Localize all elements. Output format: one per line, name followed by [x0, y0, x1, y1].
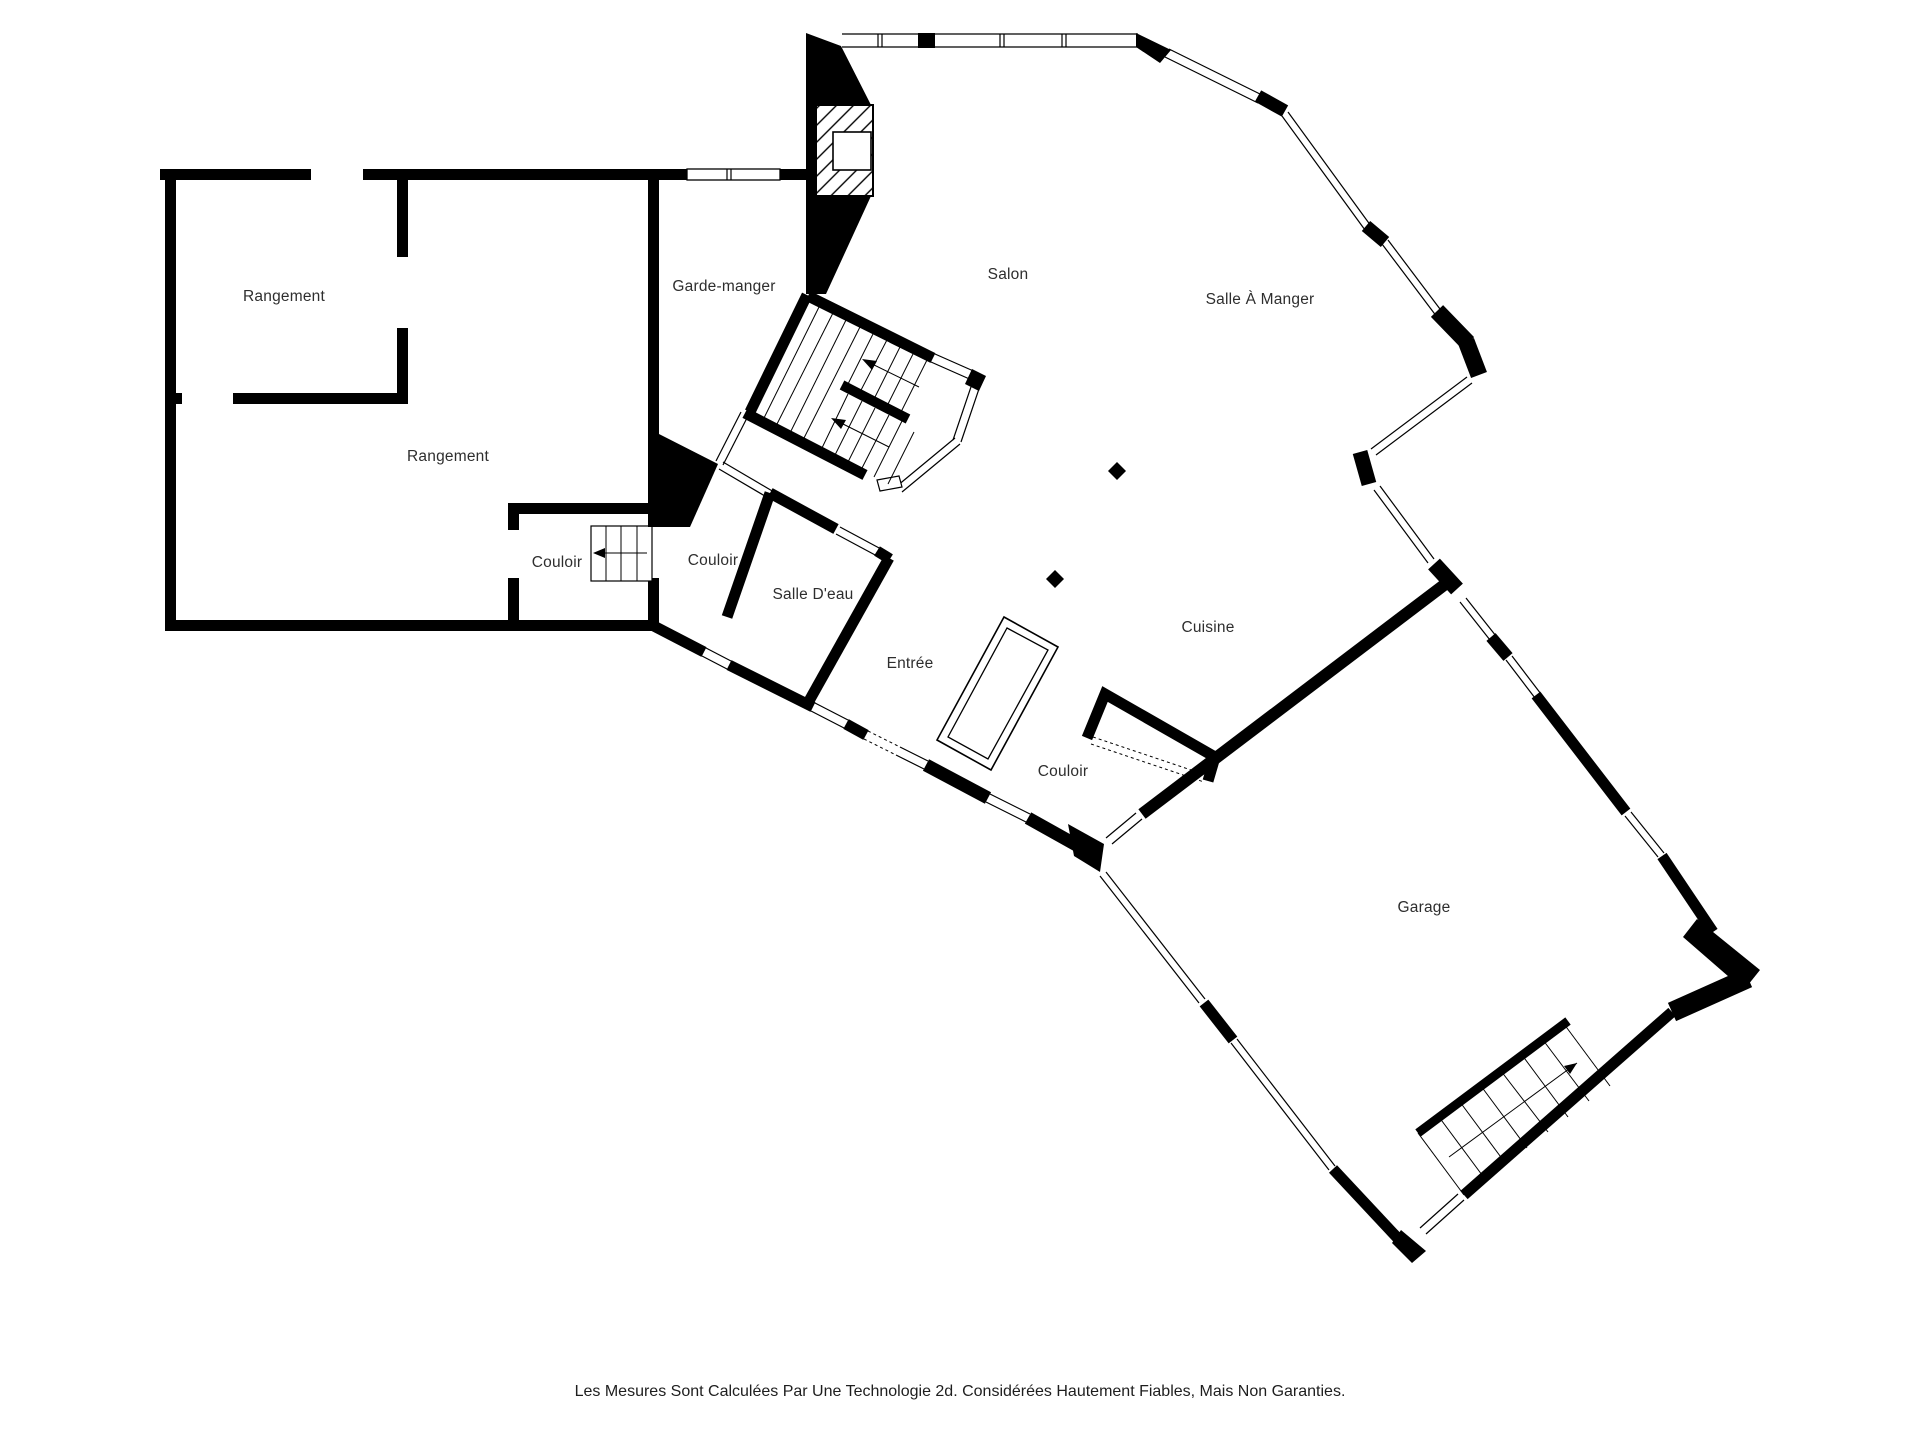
floor-plan-drawing: [0, 0, 1920, 1440]
entry-closet: [937, 617, 1058, 770]
room-label-salle-deau: Salle D'eau: [773, 586, 854, 604]
garage-door: [1420, 1194, 1464, 1234]
salle-deau-window: [836, 527, 881, 556]
garage-staircase: [1418, 1021, 1610, 1195]
storage-top-window: [687, 169, 780, 180]
dining-window-wall: [1165, 49, 1479, 375]
main-staircase: [745, 296, 986, 492]
cuisine-window-jog: [1360, 377, 1472, 589]
room-label-garage: Garage: [1398, 899, 1451, 917]
room-label-rangement-main: Rangement: [407, 448, 489, 466]
fireplace: [806, 33, 873, 294]
chimney-flue: [833, 132, 871, 170]
room-label-rangement-top: Rangement: [243, 288, 325, 306]
structural-post: [1046, 570, 1064, 588]
room-label-couloir-centre: Couloir: [688, 552, 739, 570]
room-label-garde-manger: Garde-manger: [672, 278, 775, 296]
room-label-entree: Entrée: [887, 655, 934, 673]
floor-plan-page: Rangement Rangement Garde-manger Salon S…: [0, 0, 1920, 1440]
room-label-couloir-est: Couloir: [1038, 763, 1089, 781]
garage-walls: [1068, 579, 1760, 1263]
structural-post: [1108, 462, 1126, 480]
room-label-couloir-ouest: Couloir: [532, 554, 583, 572]
salon-window-band: [842, 33, 1171, 63]
garage-side-door: [1106, 813, 1142, 844]
garage-window-wall: [1100, 872, 1405, 1246]
room-label-salle-a-manger: Salle À Manger: [1206, 291, 1315, 309]
room-label-cuisine: Cuisine: [1181, 619, 1234, 637]
room-label-salon: Salon: [988, 266, 1029, 284]
disclaimer-text: Les Mesures Sont Calculées Par Une Techn…: [575, 1383, 1346, 1401]
small-staircase: [591, 526, 652, 581]
